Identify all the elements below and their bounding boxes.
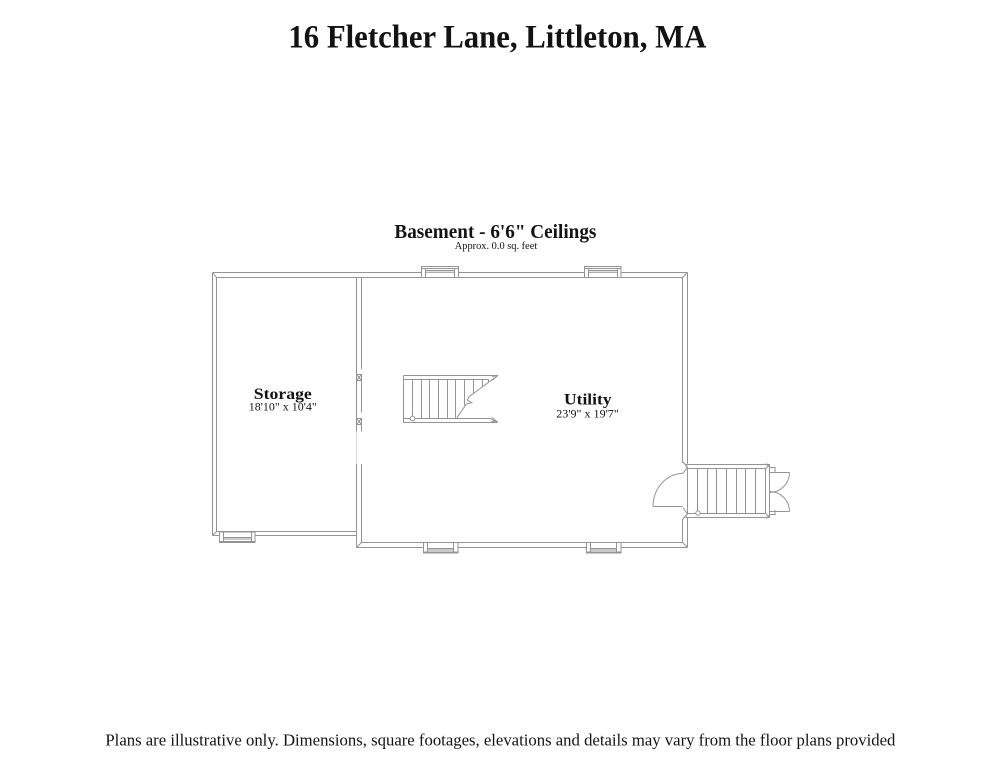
svg-text:Plans are illustrative only. D: Plans are illustrative only. Dimensions,… — [105, 731, 896, 750]
svg-text:16 Fletcher Lane, Littleton, M: 16 Fletcher Lane, Littleton, MA — [288, 20, 706, 56]
svg-text:23'9" x 19'7": 23'9" x 19'7" — [556, 407, 619, 421]
svg-text:18'10" x 10'4": 18'10" x 10'4" — [249, 400, 317, 414]
svg-text:Approx. 0.0 sq. feet: Approx. 0.0 sq. feet — [455, 241, 538, 252]
svg-text:Basement - 6'6" Ceilings: Basement - 6'6" Ceilings — [394, 222, 596, 243]
